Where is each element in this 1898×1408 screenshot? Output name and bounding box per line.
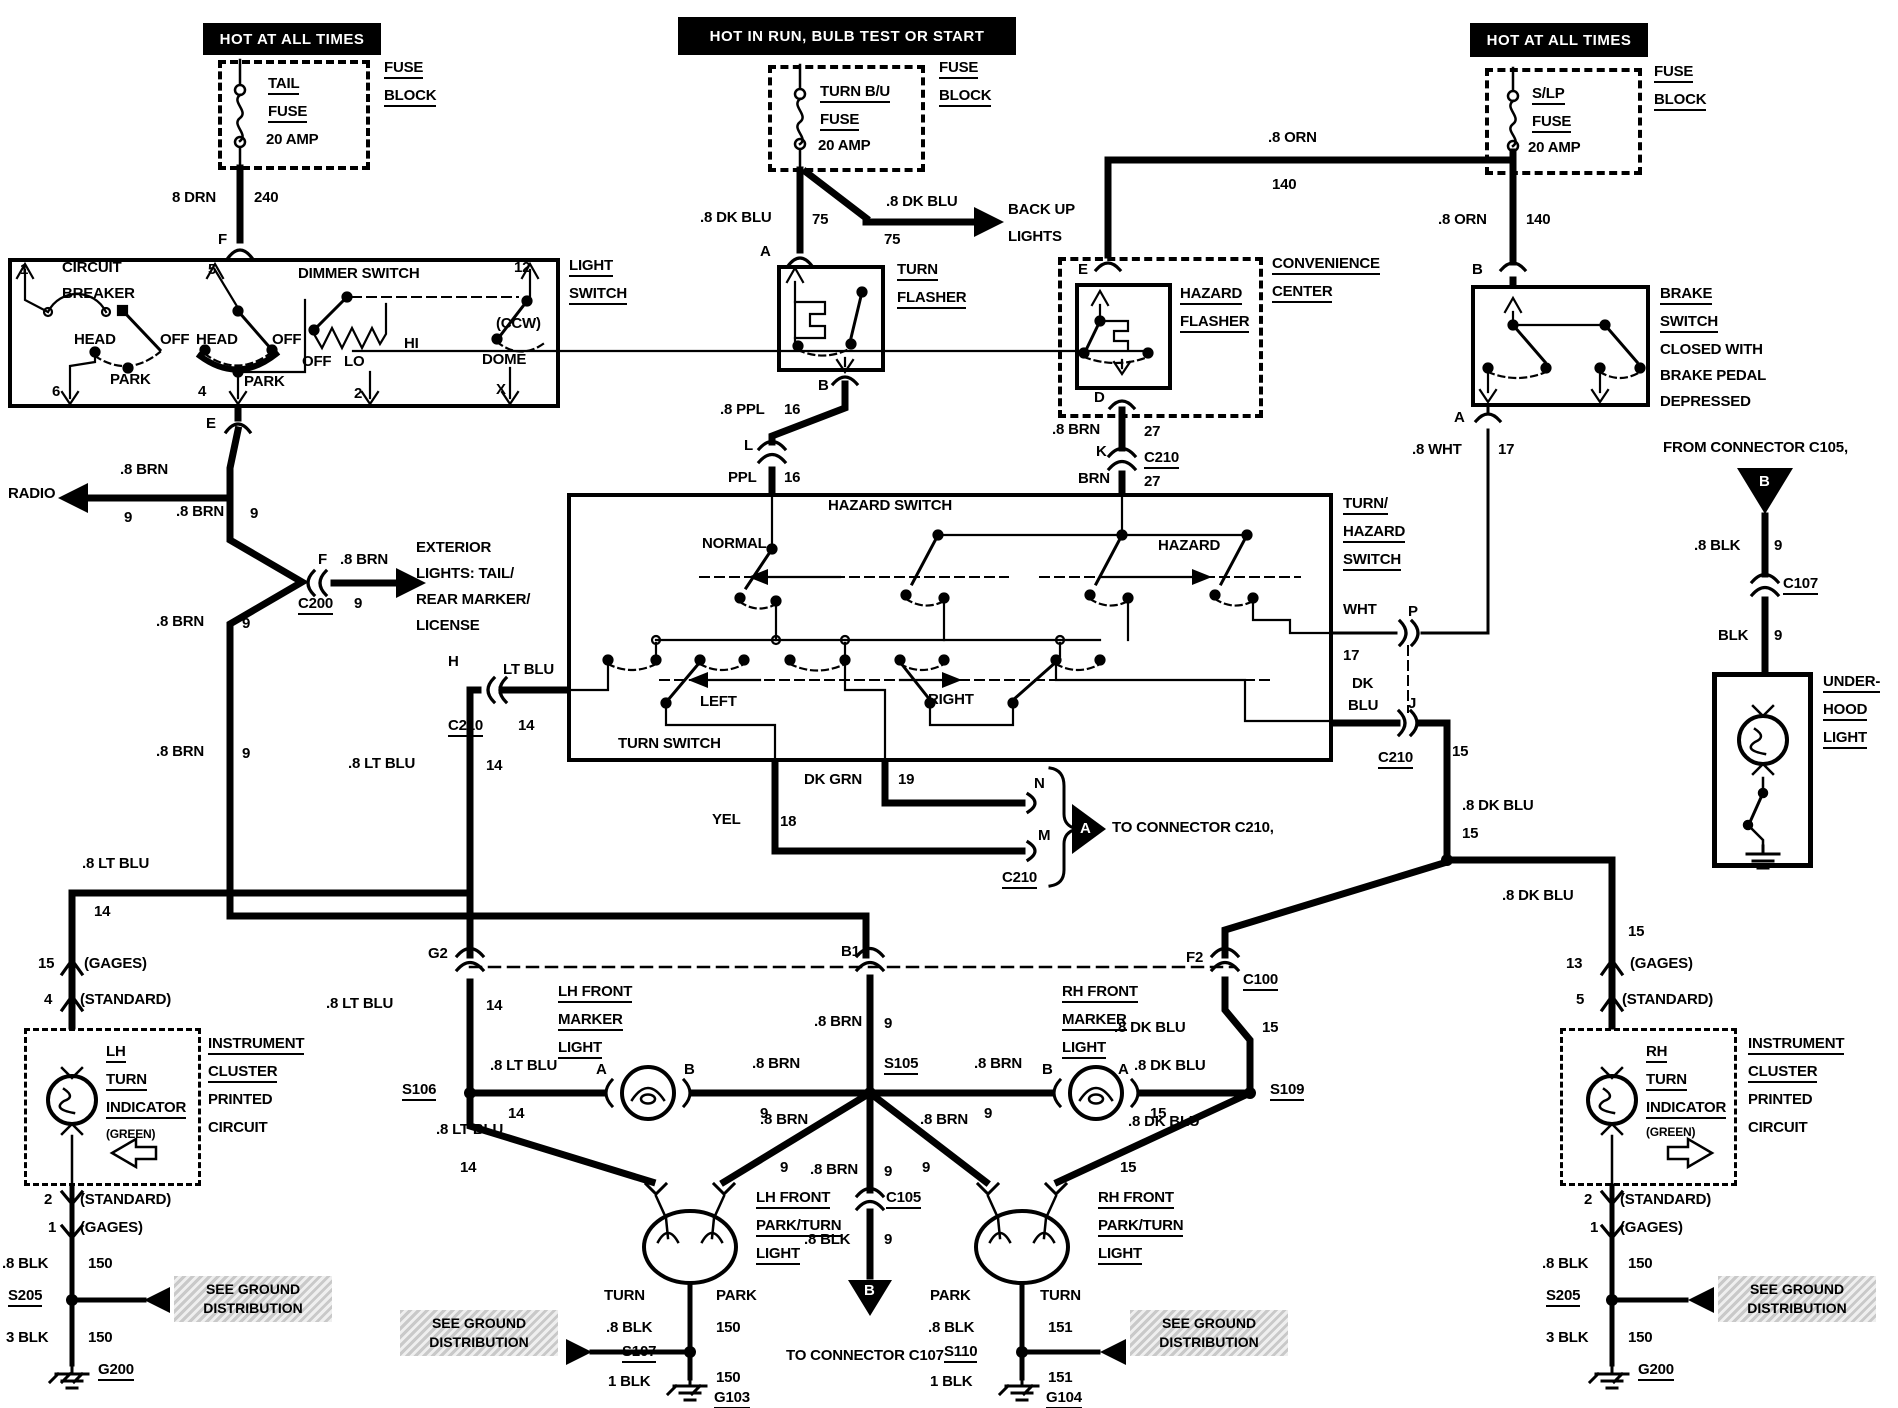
wire-brn-d2: .8 BRN bbox=[920, 1112, 968, 1128]
splice-s205-r: S205 bbox=[1546, 1288, 1580, 1307]
wire-blk-2: BLK bbox=[1718, 628, 1748, 644]
conn-f2: F2 bbox=[1186, 950, 1203, 966]
wire-brn-b1: .8 BRN bbox=[814, 1014, 862, 1030]
wire-14-l: 14 bbox=[94, 904, 110, 920]
radio: RADIO bbox=[8, 486, 55, 502]
wire-9-c105: 9 bbox=[884, 1164, 892, 1180]
pin-k: K bbox=[1096, 444, 1107, 460]
ls-head-1: HEAD bbox=[74, 332, 116, 348]
conn-g2: G2 bbox=[428, 946, 448, 962]
instr-cluster-l4: CIRCUIT bbox=[208, 1120, 267, 1136]
wire-18: 18 bbox=[780, 814, 796, 830]
ls-pin-6: 6 bbox=[52, 384, 60, 400]
wire-14-h: 14 bbox=[518, 718, 534, 734]
wire-17-1: 17 bbox=[1498, 442, 1514, 458]
rh-parkturn-1: RH FRONT bbox=[1098, 1190, 1174, 1209]
wire-14-g2: 14 bbox=[486, 998, 502, 1014]
pin-h: H bbox=[448, 654, 459, 670]
exterior-1: EXTERIOR bbox=[416, 540, 491, 556]
pin-2l: 2 bbox=[44, 1192, 52, 1208]
ls-pin-12: 12 bbox=[514, 260, 530, 276]
pin-f-c200: F bbox=[318, 552, 327, 568]
convenience-2: CENTER bbox=[1272, 284, 1332, 303]
pin-5b: 5 bbox=[1576, 992, 1584, 1008]
wire-brn-k2: BRN bbox=[1078, 471, 1110, 487]
slp-fuse-amp: 20 AMP bbox=[1528, 140, 1580, 156]
wire-27-2: 27 bbox=[1144, 474, 1160, 490]
gages-1l: (GAGES) bbox=[80, 1220, 143, 1236]
wire-dkblu-backup: .8 DK BLU bbox=[886, 194, 958, 210]
ground-g104: G104 bbox=[1046, 1390, 1082, 1408]
wire-dkblu-a: .8 DK BLU bbox=[700, 210, 772, 226]
wire-15-r1: 15 bbox=[1462, 826, 1478, 842]
pin-n: N bbox=[1034, 776, 1045, 792]
turnbu-fuse-1: TURN B/U bbox=[820, 84, 890, 103]
instr-cluster-r4: CIRCUIT bbox=[1748, 1120, 1807, 1136]
backup-2: LIGHTS bbox=[1008, 229, 1062, 245]
pin-l: L bbox=[744, 438, 753, 454]
backup-1: BACK UP bbox=[1008, 202, 1075, 218]
wire-75-a: 75 bbox=[812, 212, 828, 228]
wire-wht-2: WHT bbox=[1343, 602, 1377, 618]
pin-a-turnflasher: A bbox=[760, 244, 771, 260]
wire-dkblu-rhm: .8 DK BLU bbox=[1134, 1058, 1206, 1074]
ls-head-2: HEAD bbox=[196, 332, 238, 348]
conn-c107: C107 bbox=[1783, 576, 1818, 595]
pin-f-lightswitch: F bbox=[218, 232, 227, 248]
wire-brn-c200: .8 BRN bbox=[340, 552, 388, 568]
standard-2l: (STANDARD) bbox=[80, 1192, 171, 1208]
turn-switch-label: TURN SWITCH bbox=[618, 736, 721, 752]
pin-e-hazflasher: E bbox=[1078, 262, 1088, 278]
wire-blk-r: .8 BLK bbox=[1542, 1256, 1588, 1272]
underhood-2: HOOD bbox=[1823, 702, 1867, 721]
rh-marker-1: RH FRONT bbox=[1062, 984, 1138, 1003]
wire-150-lh2: 150 bbox=[716, 1370, 740, 1386]
tri-a-letter: A bbox=[1080, 821, 1091, 837]
slp-fuse-1: S/LP bbox=[1532, 86, 1565, 105]
ls-off-3: OFF bbox=[302, 354, 331, 370]
rh-park-pin: PARK bbox=[930, 1288, 971, 1304]
wire-9-2: 9 bbox=[250, 506, 258, 522]
exterior-4: LICENSE bbox=[416, 618, 480, 634]
lh-turn-pin: TURN bbox=[604, 1288, 645, 1304]
pin-j: J bbox=[1408, 696, 1416, 712]
ls-ccw: (CCW) bbox=[496, 316, 541, 332]
brake-4: BRAKE PEDAL bbox=[1660, 368, 1766, 384]
lh-indicator-1: LH bbox=[106, 1044, 126, 1063]
wire-orn-2: .8 ORN bbox=[1438, 212, 1487, 228]
wire-14-pt: 14 bbox=[460, 1160, 476, 1176]
ls-dimmer: DIMMER SWITCH bbox=[298, 266, 420, 282]
pin-b-lhmarker: B bbox=[684, 1062, 695, 1078]
ls-park-1: PARK bbox=[110, 372, 151, 388]
turn-flasher-2: FLASHER bbox=[897, 290, 966, 309]
pin-b-rhmarker: B bbox=[1042, 1062, 1053, 1078]
wire-140-2: 140 bbox=[1526, 212, 1550, 228]
rh-indicator-4: (GREEN) bbox=[1646, 1126, 1695, 1138]
light-switch-1: LIGHT bbox=[569, 258, 613, 277]
ls-pin-1: 1 bbox=[20, 262, 28, 278]
wire-ltblu: LT BLU bbox=[503, 662, 554, 678]
lh-parkturn-1: LH FRONT bbox=[756, 1190, 830, 1209]
pin-15: 15 bbox=[38, 956, 54, 972]
rh-indicator-3: INDICATOR bbox=[1646, 1100, 1726, 1119]
lh-indicator-3: INDICATOR bbox=[106, 1100, 186, 1119]
wire-brn-3: .8 BRN bbox=[156, 614, 204, 630]
turnbu-fuse-amp: 20 AMP bbox=[818, 138, 870, 154]
wire-140-1: 140 bbox=[1272, 177, 1296, 193]
tri-b-letter-c107: B bbox=[1759, 474, 1770, 490]
conn-c200: C200 bbox=[298, 596, 333, 615]
splice-s110: S110 bbox=[944, 1344, 977, 1363]
turnhaz-3: SWITCH bbox=[1343, 552, 1401, 571]
ls-lo: LO bbox=[344, 354, 364, 370]
wire-ltblu-6: .8 LT BLU bbox=[436, 1122, 503, 1138]
rh-marker-3: LIGHT bbox=[1062, 1040, 1106, 1059]
ls-off-1: OFF bbox=[160, 332, 189, 348]
instr-cluster-l2: CLUSTER bbox=[208, 1064, 277, 1083]
wire-14-m: 14 bbox=[508, 1106, 524, 1122]
splice-s205-l: S205 bbox=[8, 1288, 42, 1307]
wire-blk-rh: .8 BLK bbox=[928, 1320, 974, 1336]
wire-9-c107: 9 bbox=[1774, 538, 1782, 554]
standard-l: (STANDARD) bbox=[80, 992, 171, 1008]
standard-r: (STANDARD) bbox=[1622, 992, 1713, 1008]
wire-9-c200: 9 bbox=[354, 596, 362, 612]
fuse-block-r2: BLOCK bbox=[1654, 92, 1706, 111]
wire-1blk-lh: 1 BLK bbox=[608, 1374, 650, 1390]
rh-indicator-1: RH bbox=[1646, 1044, 1667, 1063]
underhood-3: LIGHT bbox=[1823, 730, 1867, 749]
turn-flasher-1: TURN bbox=[897, 262, 938, 281]
wire-9-rhm: 9 bbox=[984, 1106, 992, 1122]
turnhaz-1: TURN/ bbox=[1343, 496, 1388, 515]
fuse-block-m2: BLOCK bbox=[939, 88, 991, 107]
convenience-1: CONVENIENCE bbox=[1272, 256, 1380, 275]
tri-b-letter-c105: B bbox=[864, 1283, 875, 1299]
lh-parkturn-2: PARK/TURN bbox=[756, 1218, 841, 1237]
hazard-switch-label: HAZARD SWITCH bbox=[828, 498, 952, 514]
splice-s109: S109 bbox=[1270, 1082, 1304, 1101]
pin-d-hazflasher: D bbox=[1094, 390, 1105, 406]
wire-150-l2: 150 bbox=[88, 1330, 112, 1346]
wire-brn-s105l: .8 BRN bbox=[752, 1056, 800, 1072]
splice-s105: S105 bbox=[884, 1056, 918, 1075]
wire-16-1: 16 bbox=[784, 402, 800, 418]
splice-s107: S107 bbox=[622, 1344, 656, 1363]
pin-4b: 4 bbox=[44, 992, 52, 1008]
fuse-block-l2: BLOCK bbox=[384, 88, 436, 107]
wire-blk-lh: .8 BLK bbox=[606, 1320, 652, 1336]
ground-note-lh-parkturn: SEE GROUND DISTRIBUTION bbox=[400, 1310, 558, 1356]
wire-15-d: 15 bbox=[1120, 1160, 1136, 1176]
wire-wht: .8 WHT bbox=[1412, 442, 1462, 458]
instr-cluster-l3: PRINTED bbox=[208, 1092, 272, 1108]
turnbu-fuse-2: FUSE bbox=[820, 112, 859, 131]
brake-3: CLOSED WITH bbox=[1660, 342, 1763, 358]
wire-9-radio: 9 bbox=[124, 510, 132, 526]
ls-off-2: OFF bbox=[272, 332, 301, 348]
conn-c105: C105 bbox=[886, 1190, 921, 1209]
wire-ltblu-2: .8 LT BLU bbox=[348, 756, 415, 772]
exterior-3: REAR MARKER/ bbox=[416, 592, 530, 608]
conn-c210-k: C210 bbox=[1144, 450, 1179, 469]
wire-brn-k: .8 BRN bbox=[1052, 422, 1100, 438]
ground-g103: G103 bbox=[714, 1390, 750, 1408]
wire-blk-l: .8 BLK bbox=[2, 1256, 48, 1272]
lh-indicator-2: TURN bbox=[106, 1072, 147, 1091]
conn-c100: C100 bbox=[1243, 972, 1278, 991]
ground-note-rh-parkturn: SEE GROUND DISTRIBUTION bbox=[1130, 1310, 1288, 1356]
lh-marker-2: MARKER bbox=[558, 1012, 623, 1031]
wire-75-backup: 75 bbox=[884, 232, 900, 248]
pin-a-rhmarker: A bbox=[1118, 1062, 1129, 1078]
tail-fuse-amp: 20 AMP bbox=[266, 132, 318, 148]
ls-park-2: PARK bbox=[244, 374, 285, 390]
labels-layer: HOT AT ALL TIMESHOT IN RUN, BULB TEST OR… bbox=[0, 0, 1898, 1408]
brake-5: DEPRESSED bbox=[1660, 394, 1751, 410]
to-connector-c107: TO CONNECTOR C107 bbox=[786, 1348, 944, 1364]
wire-brn-2: .8 BRN bbox=[176, 504, 224, 520]
gages-r: (GAGES) bbox=[1630, 956, 1693, 972]
wire-17-2: 17 bbox=[1343, 648, 1359, 664]
slp-fuse-2: FUSE bbox=[1532, 114, 1571, 133]
turnhaz-2: HAZARD bbox=[1343, 524, 1405, 543]
gages-l: (GAGES) bbox=[84, 956, 147, 972]
wire-9-d2: 9 bbox=[922, 1160, 930, 1176]
wire-9-c107b: 9 bbox=[1774, 628, 1782, 644]
instr-cluster-r3: PRINTED bbox=[1748, 1092, 1812, 1108]
conn-c210-h: C210 bbox=[448, 718, 483, 737]
wire-dkblu-d: .8 DK BLU bbox=[1128, 1114, 1200, 1130]
pin-a-brake: A bbox=[1454, 410, 1465, 426]
conn-c210-j: C210 bbox=[1378, 750, 1413, 769]
tail-fuse-1: TAIL bbox=[268, 76, 299, 95]
wire-ppl: .8 PPL bbox=[720, 402, 765, 418]
wire-27-1: 27 bbox=[1144, 424, 1160, 440]
splice-s106: S106 bbox=[402, 1082, 436, 1101]
wire-16-2: 16 bbox=[784, 470, 800, 486]
ground-note-rh-indicator: SEE GROUND DISTRIBUTION bbox=[1718, 1276, 1876, 1322]
ground-note-lh-indicator: SEE GROUND DISTRIBUTION bbox=[174, 1276, 332, 1322]
ls-hi: HI bbox=[404, 336, 419, 352]
wire-151-rh2: 151 bbox=[1048, 1370, 1072, 1386]
lh-indicator-4: (GREEN) bbox=[106, 1128, 155, 1140]
pin-13: 13 bbox=[1566, 956, 1582, 972]
pin-b-brake: B bbox=[1472, 262, 1483, 278]
wire-15-r2: 15 bbox=[1628, 924, 1644, 940]
wire-150-lh: 150 bbox=[716, 1320, 740, 1336]
wire-dkgrn: DK GRN bbox=[804, 772, 862, 788]
wire-3blk-r: 3 BLK bbox=[1546, 1330, 1588, 1346]
wire-15-j: 15 bbox=[1452, 744, 1468, 760]
normal-label: NORMAL bbox=[702, 536, 767, 552]
wire-ppl-2: PPL bbox=[728, 470, 757, 486]
lh-parkturn-3: LIGHT bbox=[756, 1246, 800, 1265]
wire-dkblu-r1: .8 DK BLU bbox=[1462, 798, 1534, 814]
instr-cluster-r1: INSTRUMENT bbox=[1748, 1036, 1844, 1055]
pin-1l: 1 bbox=[48, 1220, 56, 1236]
pin-2r: 2 bbox=[1584, 1192, 1592, 1208]
wire-151-rh: 151 bbox=[1048, 1320, 1072, 1336]
wire-ltblu-5: .8 LT BLU bbox=[490, 1058, 557, 1074]
lh-park-pin: PARK bbox=[716, 1288, 757, 1304]
wire-ltblu-3: .8 LT BLU bbox=[82, 856, 149, 872]
wire-9-3: 9 bbox=[242, 616, 250, 632]
wire-150-l: 150 bbox=[88, 1256, 112, 1272]
wire-dkblu-r2: .8 DK BLU bbox=[1502, 888, 1574, 904]
power-tag-right: HOT AT ALL TIMES bbox=[1470, 23, 1648, 57]
power-tag-left: HOT AT ALL TIMES bbox=[203, 23, 381, 55]
pin-e-lightswitch: E bbox=[206, 416, 216, 432]
ls-circuit: CIRCUIT bbox=[62, 260, 121, 276]
wire-240: 240 bbox=[254, 190, 278, 206]
wire-9-b: 9 bbox=[884, 1232, 892, 1248]
wire-orn: .8 ORN bbox=[1268, 130, 1317, 146]
wire-brn-c105: .8 BRN bbox=[810, 1162, 858, 1178]
wire-brn-radio: .8 BRN bbox=[120, 462, 168, 478]
wire-3blk-l: 3 BLK bbox=[6, 1330, 48, 1346]
ls-pin-5: 5 bbox=[208, 262, 216, 278]
standard-2r: (STANDARD) bbox=[1620, 1192, 1711, 1208]
fuse-block-l1: FUSE bbox=[384, 60, 423, 79]
wire-dk: DK bbox=[1352, 676, 1373, 692]
ground-g200-r: G200 bbox=[1638, 1362, 1674, 1381]
wire-blu: BLU bbox=[1348, 698, 1378, 714]
wire-19: 19 bbox=[898, 772, 914, 788]
left-label: LEFT bbox=[700, 694, 737, 710]
ground-g200-l: G200 bbox=[98, 1362, 134, 1381]
conn-b1: B1 bbox=[841, 944, 860, 960]
fuse-block-m1: FUSE bbox=[939, 60, 978, 79]
wire-1blk-rh: 1 BLK bbox=[930, 1374, 972, 1390]
tail-fuse-2: FUSE bbox=[268, 104, 307, 123]
lh-marker-1: LH FRONT bbox=[558, 984, 632, 1003]
wire-9-b1: 9 bbox=[884, 1016, 892, 1032]
ls-breaker: BREAKER bbox=[62, 286, 135, 302]
instr-cluster-r2: CLUSTER bbox=[1748, 1064, 1817, 1083]
brake-1: BRAKE bbox=[1660, 286, 1712, 305]
pin-b-turnflasher: B bbox=[818, 378, 829, 394]
wire-brn-4: .8 BRN bbox=[156, 744, 204, 760]
wire-dkblu-f2: .8 DK BLU bbox=[1114, 1020, 1186, 1036]
pin-m: M bbox=[1038, 828, 1050, 844]
hazard-label: HAZARD bbox=[1158, 538, 1220, 554]
wire-14-h2: 14 bbox=[486, 758, 502, 774]
wire-blk-c107: .8 BLK bbox=[1694, 538, 1740, 554]
gages-1r: (GAGES) bbox=[1620, 1220, 1683, 1236]
right-label: RIGHT bbox=[928, 692, 974, 708]
ls-pin-2: 2 bbox=[354, 386, 362, 402]
rh-parkturn-3: LIGHT bbox=[1098, 1246, 1142, 1265]
rh-indicator-2: TURN bbox=[1646, 1072, 1687, 1091]
underhood-1: UNDER- bbox=[1823, 674, 1880, 693]
wire-8drn: 8 DRN bbox=[172, 190, 216, 206]
lh-marker-3: LIGHT bbox=[558, 1040, 602, 1059]
from-connector-c105: FROM CONNECTOR C105, bbox=[1663, 440, 1848, 456]
hazard-flasher-2: FLASHER bbox=[1180, 314, 1249, 333]
rh-turn-pin: TURN bbox=[1040, 1288, 1081, 1304]
instr-cluster-l1: INSTRUMENT bbox=[208, 1036, 304, 1055]
rh-parkturn-2: PARK/TURN bbox=[1098, 1218, 1183, 1237]
wire-9-d1: 9 bbox=[780, 1160, 788, 1176]
wire-yel: YEL bbox=[712, 812, 741, 828]
pin-1r: 1 bbox=[1590, 1220, 1598, 1236]
exterior-2: LIGHTS: TAIL/ bbox=[416, 566, 514, 582]
ls-pin-x: X bbox=[496, 382, 506, 398]
wire-9-4: 9 bbox=[242, 746, 250, 762]
light-switch-2: SWITCH bbox=[569, 286, 627, 305]
to-connector-c210: TO CONNECTOR C210, bbox=[1112, 820, 1274, 836]
wiring-diagram-page: HOT AT ALL TIMESHOT IN RUN, BULB TEST OR… bbox=[0, 0, 1898, 1408]
pin-a-lhmarker: A bbox=[596, 1062, 607, 1078]
wire-ltblu-4: .8 LT BLU bbox=[326, 996, 393, 1012]
wire-brn-d1: .8 BRN bbox=[760, 1112, 808, 1128]
ls-pin-4: 4 bbox=[198, 384, 206, 400]
wire-150-r2: 150 bbox=[1628, 1330, 1652, 1346]
fuse-block-r1: FUSE bbox=[1654, 64, 1693, 83]
brake-2: SWITCH bbox=[1660, 314, 1718, 333]
wire-150-r: 150 bbox=[1628, 1256, 1652, 1272]
power-tag-mid: HOT IN RUN, BULB TEST OR START bbox=[678, 17, 1016, 55]
wire-brn-rhm: .8 BRN bbox=[974, 1056, 1022, 1072]
conn-c210-nm: C210 bbox=[1002, 870, 1037, 889]
ls-dome: DOME bbox=[482, 352, 526, 368]
pin-p: P bbox=[1408, 604, 1418, 620]
hazard-flasher-1: HAZARD bbox=[1180, 286, 1242, 305]
wire-15-f2: 15 bbox=[1262, 1020, 1278, 1036]
